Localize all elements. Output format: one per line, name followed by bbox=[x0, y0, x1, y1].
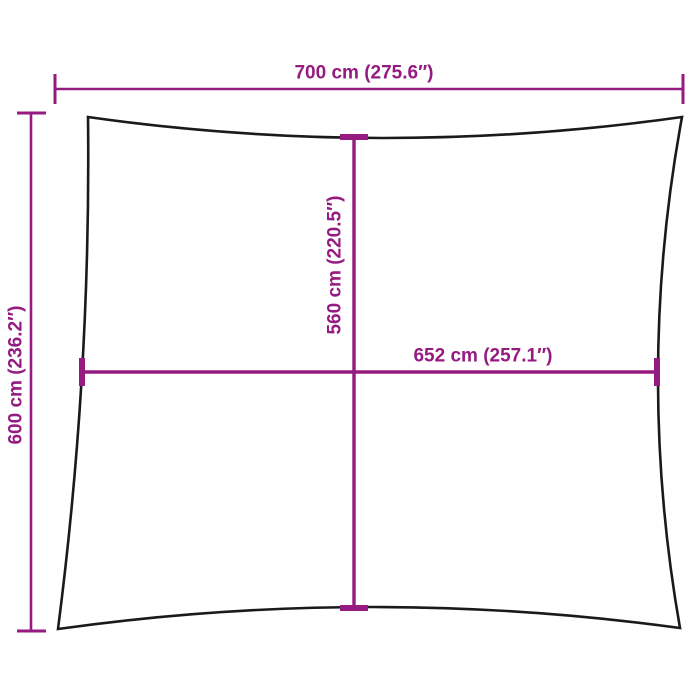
overall-width-label: 700 cm (275.6″) bbox=[294, 64, 433, 85]
inner-height-label: 560 cm (220.5″) bbox=[326, 195, 347, 334]
inner-width-dimension bbox=[79, 358, 660, 386]
inner-width-tick-right bbox=[654, 358, 660, 386]
inner-width-label: 652 cm (257.1″) bbox=[413, 347, 552, 368]
overall-height-label: 600 cm (236.2″) bbox=[7, 305, 28, 444]
diagram-graphics bbox=[0, 0, 700, 700]
inner-height-tick-bottom bbox=[340, 605, 368, 611]
inner-height-tick-top bbox=[340, 134, 368, 140]
dimension-diagram: 700 cm (275.6″) 600 cm (236.2″) 560 cm (… bbox=[0, 0, 700, 700]
inner-width-tick-left bbox=[79, 358, 85, 386]
